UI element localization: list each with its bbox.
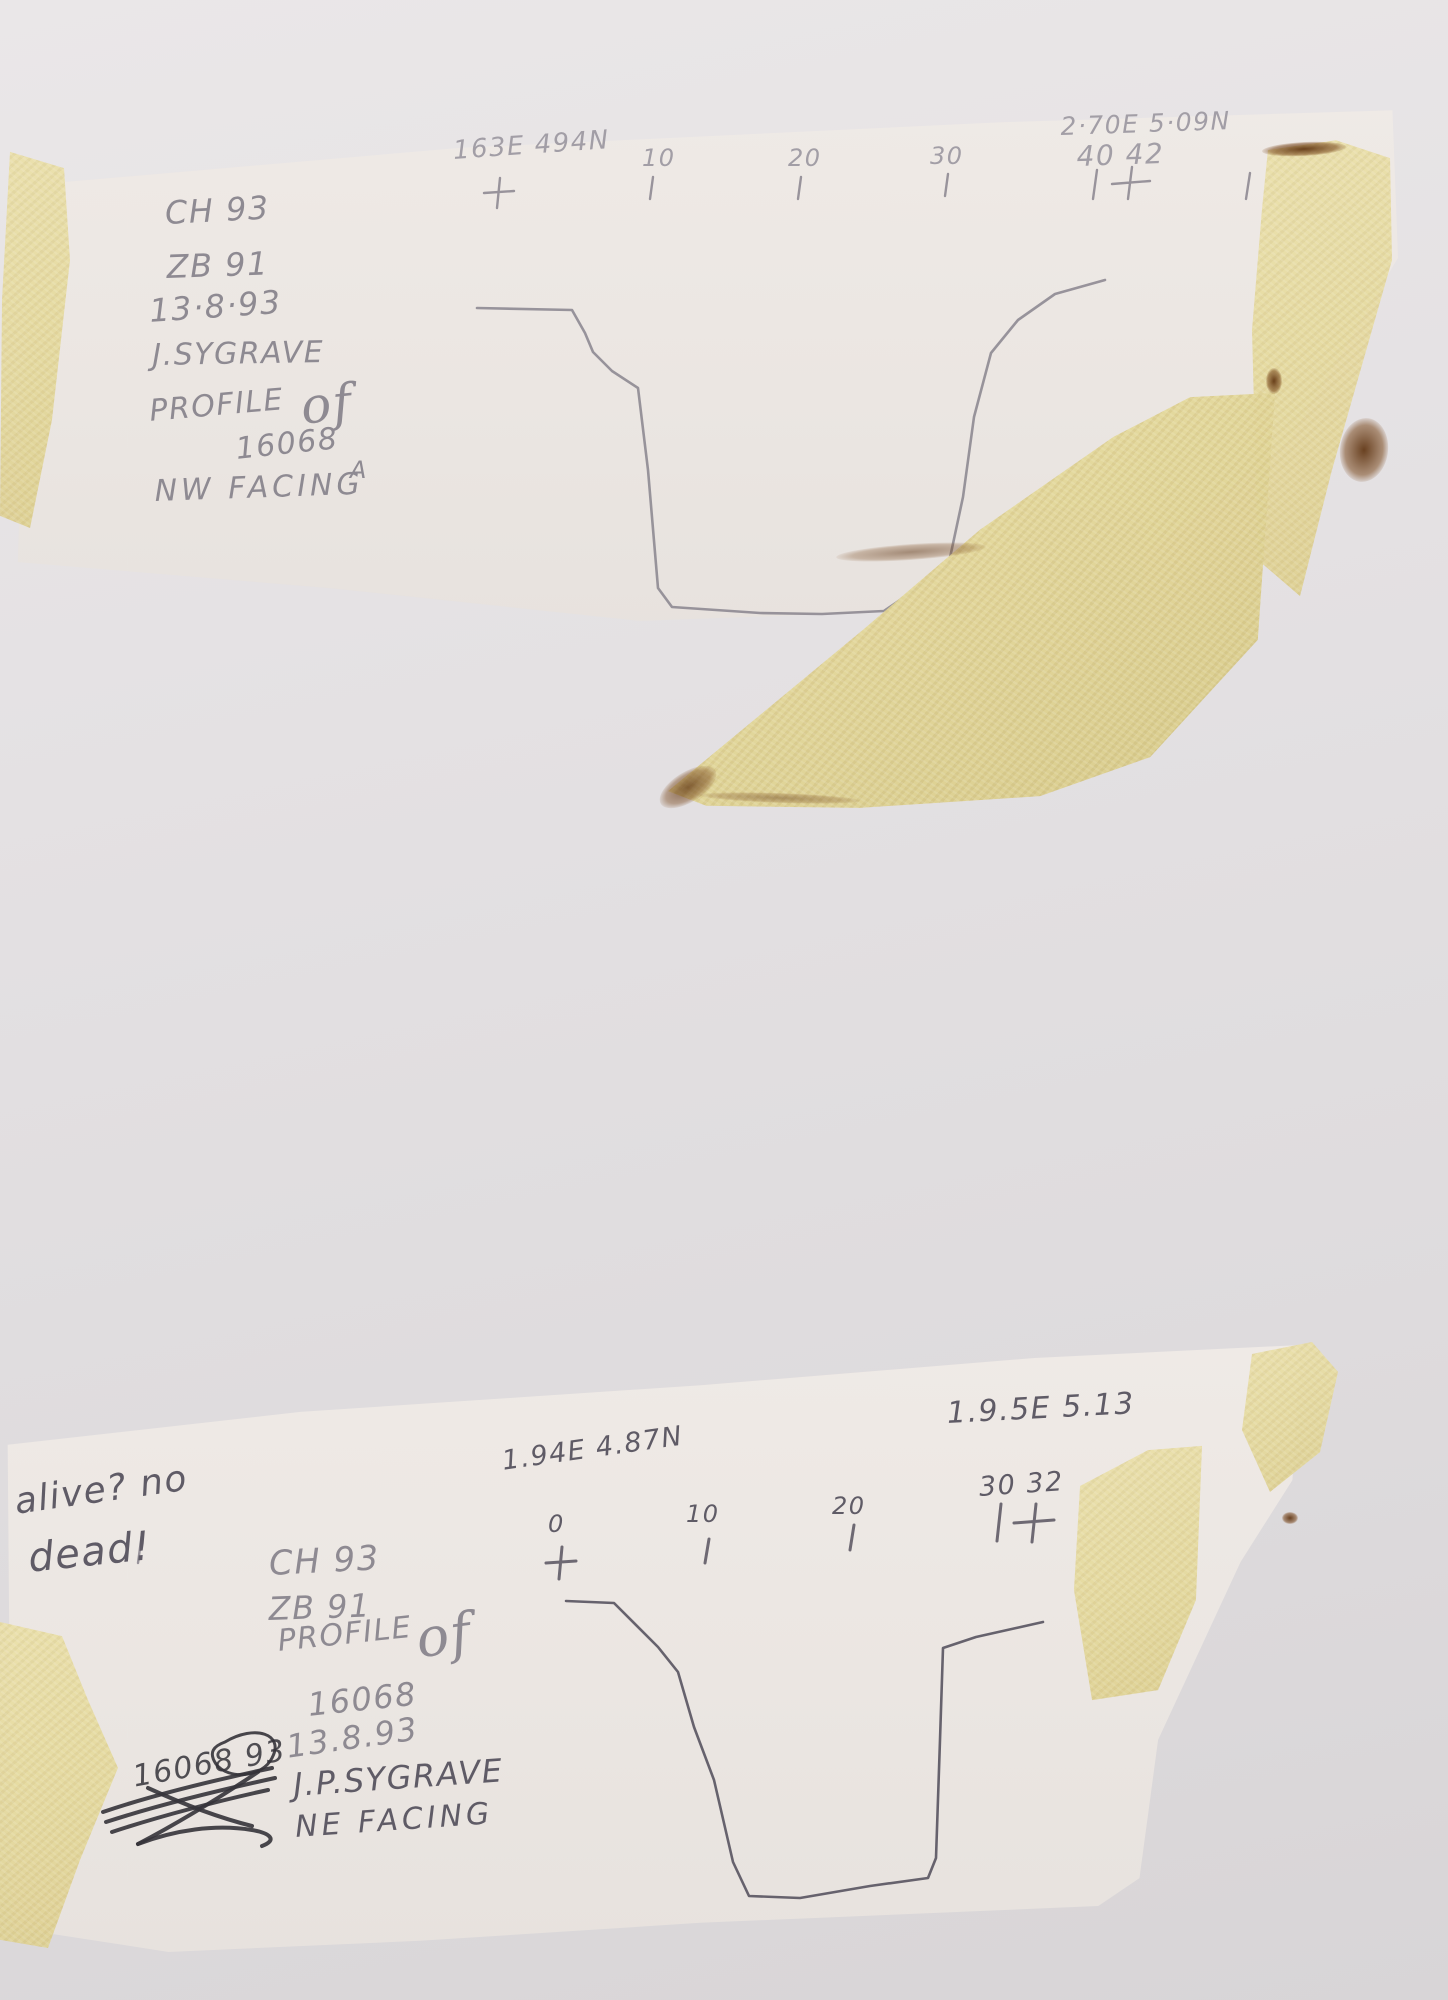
scale-end-label-top: 40 42 xyxy=(1076,137,1165,173)
scanned-archive-photo: 163E 494N 10 20 30 2·70E 5·09N 40 42 CH … xyxy=(0,0,1448,2000)
tape-stain-bottom-small-dot xyxy=(1282,1512,1298,1524)
datum-label-top-right: 2·70E 5·09N xyxy=(1060,106,1231,141)
site-code-bottom: CH 93 xyxy=(268,1538,381,1584)
recorder-top: J.SYGRAVE xyxy=(152,335,324,373)
zone-code-top: ZB 91 xyxy=(166,244,270,286)
facing-top: NW FACING xyxy=(154,467,364,509)
scale-end-label-bottom: 30 32 xyxy=(978,1466,1065,1503)
scale-label-bottom-10: 10 xyxy=(686,1500,720,1528)
tape-stain-right-small xyxy=(1266,368,1282,394)
scale-label-bottom-0: 0 xyxy=(548,1510,565,1538)
of-word-bottom: of xyxy=(412,1600,476,1670)
scale-label-bottom-20: 20 xyxy=(832,1492,866,1520)
scale-label-top-10: 10 xyxy=(642,144,676,172)
site-code-top: CH 93 xyxy=(164,189,271,232)
scale-label-top-20: 20 xyxy=(788,144,822,172)
scale-label-top-30: 30 xyxy=(930,142,964,170)
